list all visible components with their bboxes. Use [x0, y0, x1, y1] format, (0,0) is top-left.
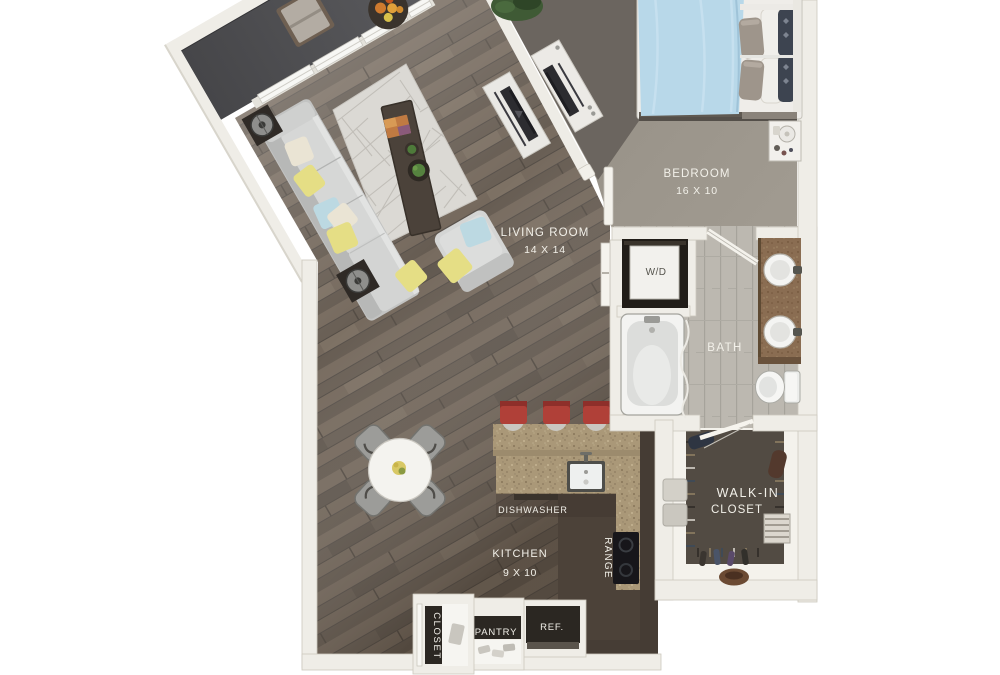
svg-text:PANTRY: PANTRY — [475, 627, 517, 638]
svg-text:W/D: W/D — [646, 267, 667, 278]
svg-text:LIVING ROOM: LIVING ROOM — [501, 227, 590, 239]
svg-text:RANGE: RANGE — [602, 537, 613, 579]
svg-text:BATH: BATH — [707, 342, 742, 354]
svg-text:CLOSET: CLOSET — [431, 612, 442, 660]
svg-text:WALK-IN: WALK-IN — [717, 486, 780, 500]
svg-text:16 X 10: 16 X 10 — [676, 185, 718, 197]
svg-text:CLOSET: CLOSET — [711, 504, 763, 516]
svg-text:14 X 14: 14 X 14 — [524, 244, 566, 256]
svg-text:BEDROOM: BEDROOM — [663, 168, 730, 180]
svg-text:9 X 10: 9 X 10 — [503, 567, 537, 579]
svg-text:REF.: REF. — [540, 622, 564, 633]
svg-text:KITCHEN: KITCHEN — [492, 548, 547, 560]
svg-text:DISHWASHER: DISHWASHER — [498, 505, 568, 515]
